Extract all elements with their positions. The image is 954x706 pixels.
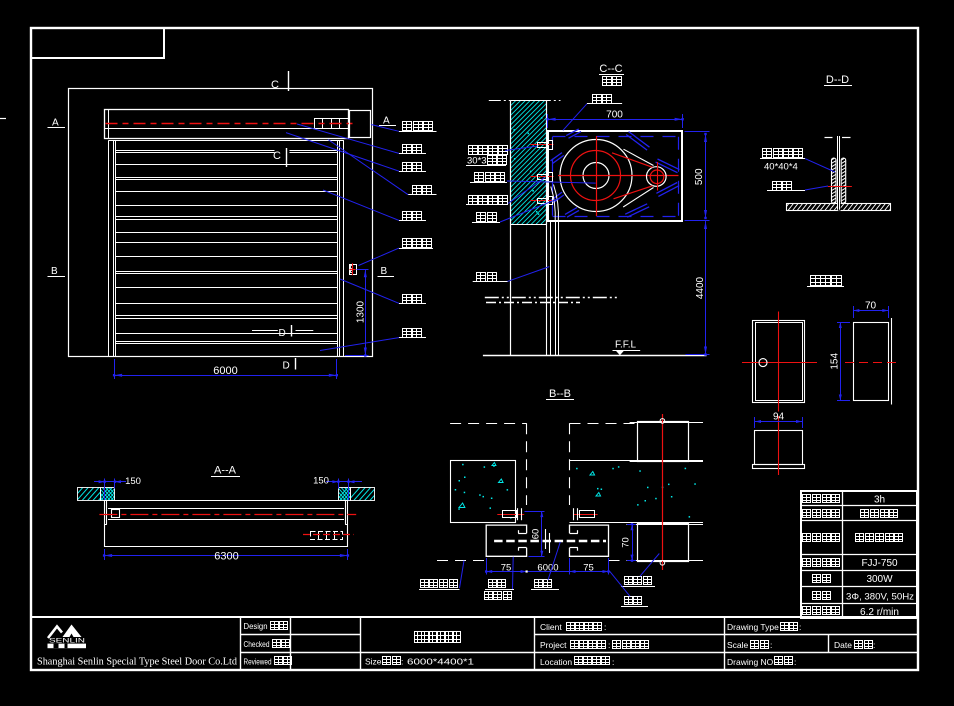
svg-text:A--A: A--A [214, 465, 237, 477]
svg-text:Drawing NO: Drawing NO [727, 657, 774, 667]
svg-text:Scale: Scale [727, 640, 749, 650]
svg-text:SENLIN: SENLIN [49, 637, 85, 644]
svg-text::: : [794, 657, 796, 667]
svg-text:3h: 3h [874, 495, 885, 506]
svg-text:B--B: B--B [549, 388, 571, 400]
svg-text:B: B [381, 266, 388, 277]
svg-text:154: 154 [830, 353, 841, 370]
svg-text::: : [401, 657, 403, 667]
svg-text:700: 700 [606, 110, 623, 121]
svg-text:6300: 6300 [214, 550, 238, 562]
svg-text:Location: Location [540, 657, 572, 667]
svg-text:F.F.L: F.F.L [615, 340, 637, 351]
svg-text:1300: 1300 [356, 300, 367, 323]
svg-text:FJJ-750: FJJ-750 [861, 558, 898, 569]
svg-text:150: 150 [313, 476, 329, 487]
svg-text:500: 500 [694, 168, 705, 185]
svg-text:D: D [279, 328, 286, 339]
svg-text:Design: Design [244, 622, 268, 631]
svg-text:A: A [383, 116, 390, 127]
svg-text:Client: Client [540, 622, 562, 632]
svg-text:C: C [273, 150, 281, 162]
svg-text:75: 75 [583, 562, 594, 573]
svg-text:B: B [51, 266, 58, 277]
svg-text:6000: 6000 [213, 365, 237, 377]
svg-text:D--D: D--D [826, 74, 849, 86]
svg-text::: : [612, 657, 614, 667]
svg-text:Reviewed: Reviewed [244, 658, 272, 667]
svg-text:60: 60 [531, 529, 542, 540]
svg-text::: : [770, 640, 772, 650]
svg-text::: : [873, 640, 875, 650]
svg-text:Project: Project [540, 640, 567, 650]
svg-text:C--C: C--C [599, 63, 622, 75]
svg-text:Shanghai Senlin Special Type S: Shanghai Senlin Special Type Steel Door … [37, 657, 238, 668]
svg-text:D: D [283, 361, 290, 372]
svg-text:30*3: 30*3 [467, 155, 487, 166]
svg-text:Drawing Type: Drawing Type [727, 622, 779, 632]
svg-text:70: 70 [865, 301, 877, 312]
svg-text:300W: 300W [866, 574, 893, 585]
svg-text:4400: 4400 [695, 276, 706, 299]
svg-text:A: A [52, 118, 59, 129]
svg-text::: : [608, 640, 610, 650]
svg-text:Date: Date [834, 640, 852, 650]
svg-text:C: C [271, 79, 279, 91]
svg-text:150: 150 [125, 476, 141, 487]
svg-text:75: 75 [501, 562, 512, 573]
svg-text:6000*4400*1: 6000*4400*1 [407, 657, 474, 667]
svg-text::: : [604, 622, 606, 632]
svg-text:94: 94 [773, 412, 785, 423]
svg-text:Size: Size [365, 657, 382, 667]
svg-text:3Φ, 380V, 50Hz: 3Φ, 380V, 50Hz [846, 592, 914, 603]
svg-text:Checked: Checked [244, 640, 270, 649]
svg-text:70: 70 [621, 537, 632, 548]
svg-text:40*40*4: 40*40*4 [764, 162, 798, 173]
svg-text:6000: 6000 [537, 562, 558, 573]
svg-text::: : [799, 622, 801, 632]
